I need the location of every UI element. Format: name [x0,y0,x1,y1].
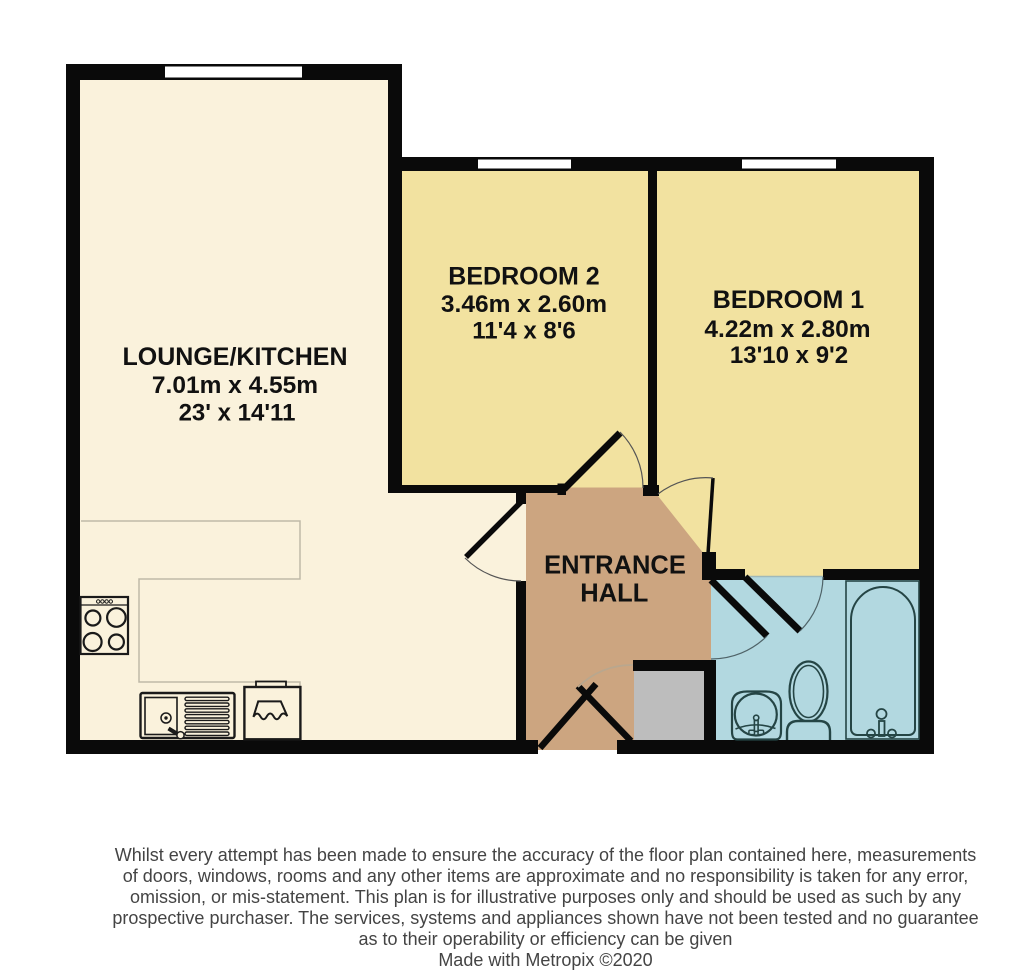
svg-text:BEDROOM 2: BEDROOM 2 [448,263,599,291]
svg-text:23' x 14'11: 23' x 14'11 [179,400,296,427]
svg-text:of doors, windows, rooms and a: of doors, windows, rooms and any other i… [123,866,968,886]
svg-text:11'4 x 8'6: 11'4 x 8'6 [472,318,576,345]
svg-text:omission, or mis-statement. Th: omission, or mis-statement. This plan is… [130,887,961,907]
svg-text:as to their operability or eff: as to their operability or efficiency ca… [359,929,733,949]
svg-text:3.46m x 2.60m: 3.46m x 2.60m [441,291,607,318]
svg-text:ENTRANCE: ENTRANCE [544,552,686,580]
svg-text:LOUNGE/KITCHEN: LOUNGE/KITCHEN [123,343,348,371]
svg-text:prospective purchaser. The ser: prospective purchaser. The services, sys… [112,908,978,928]
svg-text:4.22m x 2.80m: 4.22m x 2.80m [704,316,870,343]
svg-text:HALL: HALL [580,580,648,608]
svg-text:13'10 x 9'2: 13'10 x 9'2 [730,342,848,369]
svg-text:Whilst every attempt has been: Whilst every attempt has been made to en… [115,845,976,865]
svg-text:BEDROOM 1: BEDROOM 1 [713,286,865,314]
svg-text:Made with Metropix ©2020: Made with Metropix ©2020 [438,950,652,970]
svg-text:7.01m x 4.55m: 7.01m x 4.55m [152,372,318,399]
